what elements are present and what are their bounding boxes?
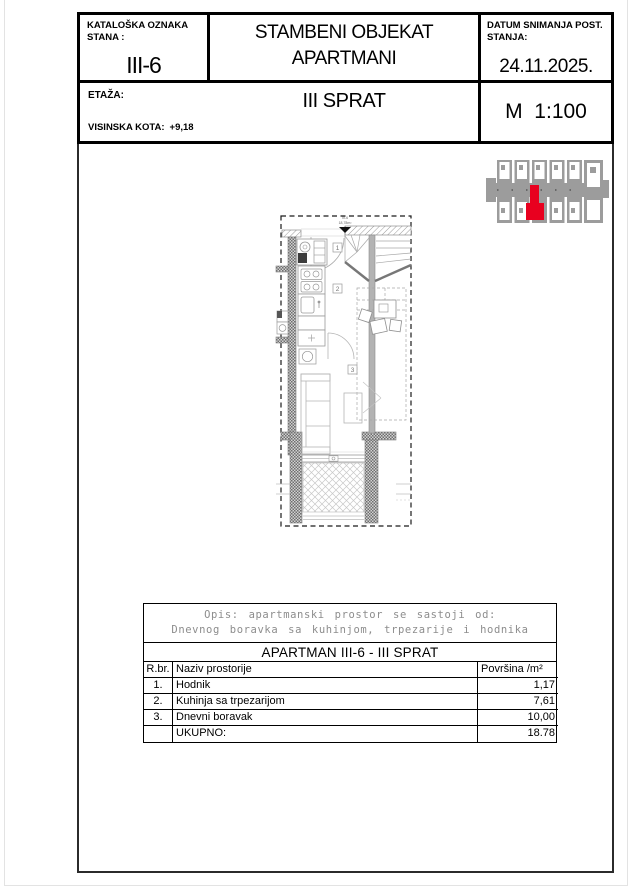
room-marker-1-label: 1: [336, 245, 340, 252]
floor-cell: ETAŽA: III SPRAT VISINSKA KOTA:+9,18: [80, 83, 478, 141]
col-header-area: Površina /m²: [477, 662, 558, 678]
coffee-table: [344, 393, 362, 423]
row-name: Kuhinja sa trpezarijom: [173, 694, 477, 710]
row-area: 7,61: [477, 694, 558, 710]
row-name: UKUPNO:: [173, 726, 477, 742]
appliance: [299, 349, 316, 364]
row-name: Hodnik: [173, 678, 477, 694]
description-line2: Dnevnog boravka sa kuhinjom, trpezarije …: [144, 623, 556, 638]
kitchen-counter: [298, 316, 325, 346]
stove: [298, 266, 325, 294]
row-area: 10,00: [477, 710, 558, 726]
row-num: 3.: [144, 710, 173, 726]
date-cell: DATUM SNIMANJA POST. STANJA: 24.11.2025.: [481, 15, 611, 80]
drawing-sheet: { "colors": { "highlight_red": "#e8001f"…: [0, 0, 631, 891]
kitchen-sink: [298, 294, 325, 316]
dining-table: [358, 300, 401, 334]
neighbor-fixture: [277, 311, 288, 334]
room-marker-living: 3: [348, 365, 357, 374]
col-header-num: R.br.: [144, 662, 173, 678]
table-row: 3. Dnevni boravak 10,00: [144, 710, 556, 726]
floor-value: III SPRAT: [210, 90, 478, 113]
catalog-cell: KATALOŠKA OZNAKA STANA : III-6: [80, 15, 207, 80]
sofa: [301, 374, 330, 454]
row-area: 18.78: [477, 726, 558, 742]
project-title-line1: STAMBENI OBJEKAT: [210, 22, 478, 44]
door-opening-lintel: [301, 226, 345, 237]
elevation: VISINSKA KOTA:+9,18: [88, 122, 194, 133]
area-table-title: APARTMAN III-6 - III SPRAT: [144, 643, 556, 662]
table-row-total: UKUPNO: 18.78: [144, 726, 556, 742]
area-table: Opis: apartmanski prostor se sastoji od:…: [143, 603, 557, 743]
col-header-name: Naziv prostorije: [173, 662, 477, 678]
row-num: [144, 726, 173, 742]
stairs: [345, 235, 411, 263]
elevation-value: +9,18: [170, 122, 194, 133]
catalog-value: III-6: [80, 52, 207, 79]
interior-door: [328, 333, 354, 359]
stair-break-line: [345, 262, 411, 281]
row-area: 1,17: [477, 678, 558, 694]
elevation-label: VISINSKA KOTA:: [88, 122, 165, 133]
date-label: DATUM SNIMANJA POST.: [487, 20, 611, 32]
row-name: Dnevni boravak: [173, 710, 477, 726]
room-marker-kitchen: 2: [333, 284, 342, 293]
project-title-cell: STAMBENI OBJEKAT APARTMANI: [210, 15, 478, 80]
entrance-label-line2: 18,78m²: [339, 221, 353, 225]
balcony-window: [302, 452, 365, 462]
catalog-label-2: STANA :: [87, 32, 207, 44]
table-row: 2. Kuhinja sa trpezarijom 7,61: [144, 694, 556, 710]
area-table-header: R.br. Naziv prostorije Površina /m²: [144, 662, 556, 678]
scale-value: M 1:100: [481, 83, 611, 141]
description: Opis: apartmanski prostor se sastoji od:…: [144, 604, 556, 643]
room-marker-3-label: 3: [351, 367, 355, 374]
project-title-line2: APARTMANI: [210, 48, 478, 70]
room-marker-hallway: 1: [333, 243, 342, 252]
kitchen-closet: [297, 239, 327, 265]
row-num: 2.: [144, 694, 173, 710]
key-plan: [485, 150, 609, 240]
floor-plan: III-6 18,78m²: [274, 212, 416, 530]
entrance-label-line1: III-6: [342, 216, 348, 220]
date-label-2: STANJA:: [487, 32, 611, 44]
description-line1: Opis: apartmanski prostor se sastoji od:: [144, 608, 556, 623]
title-block: KATALOŠKA OZNAKA STANA : III-6 STAMBENI …: [77, 12, 614, 144]
row-num: 1.: [144, 678, 173, 694]
room-marker-2-label: 2: [336, 286, 340, 293]
date-value: 24.11.2025.: [481, 56, 611, 78]
catalog-label: KATALOŠKA OZNAKA: [87, 20, 207, 32]
table-row: 1. Hodnik 1,17: [144, 678, 556, 694]
balcony-terrace: [303, 463, 364, 512]
floor-label: ETAŽA:: [88, 90, 124, 101]
